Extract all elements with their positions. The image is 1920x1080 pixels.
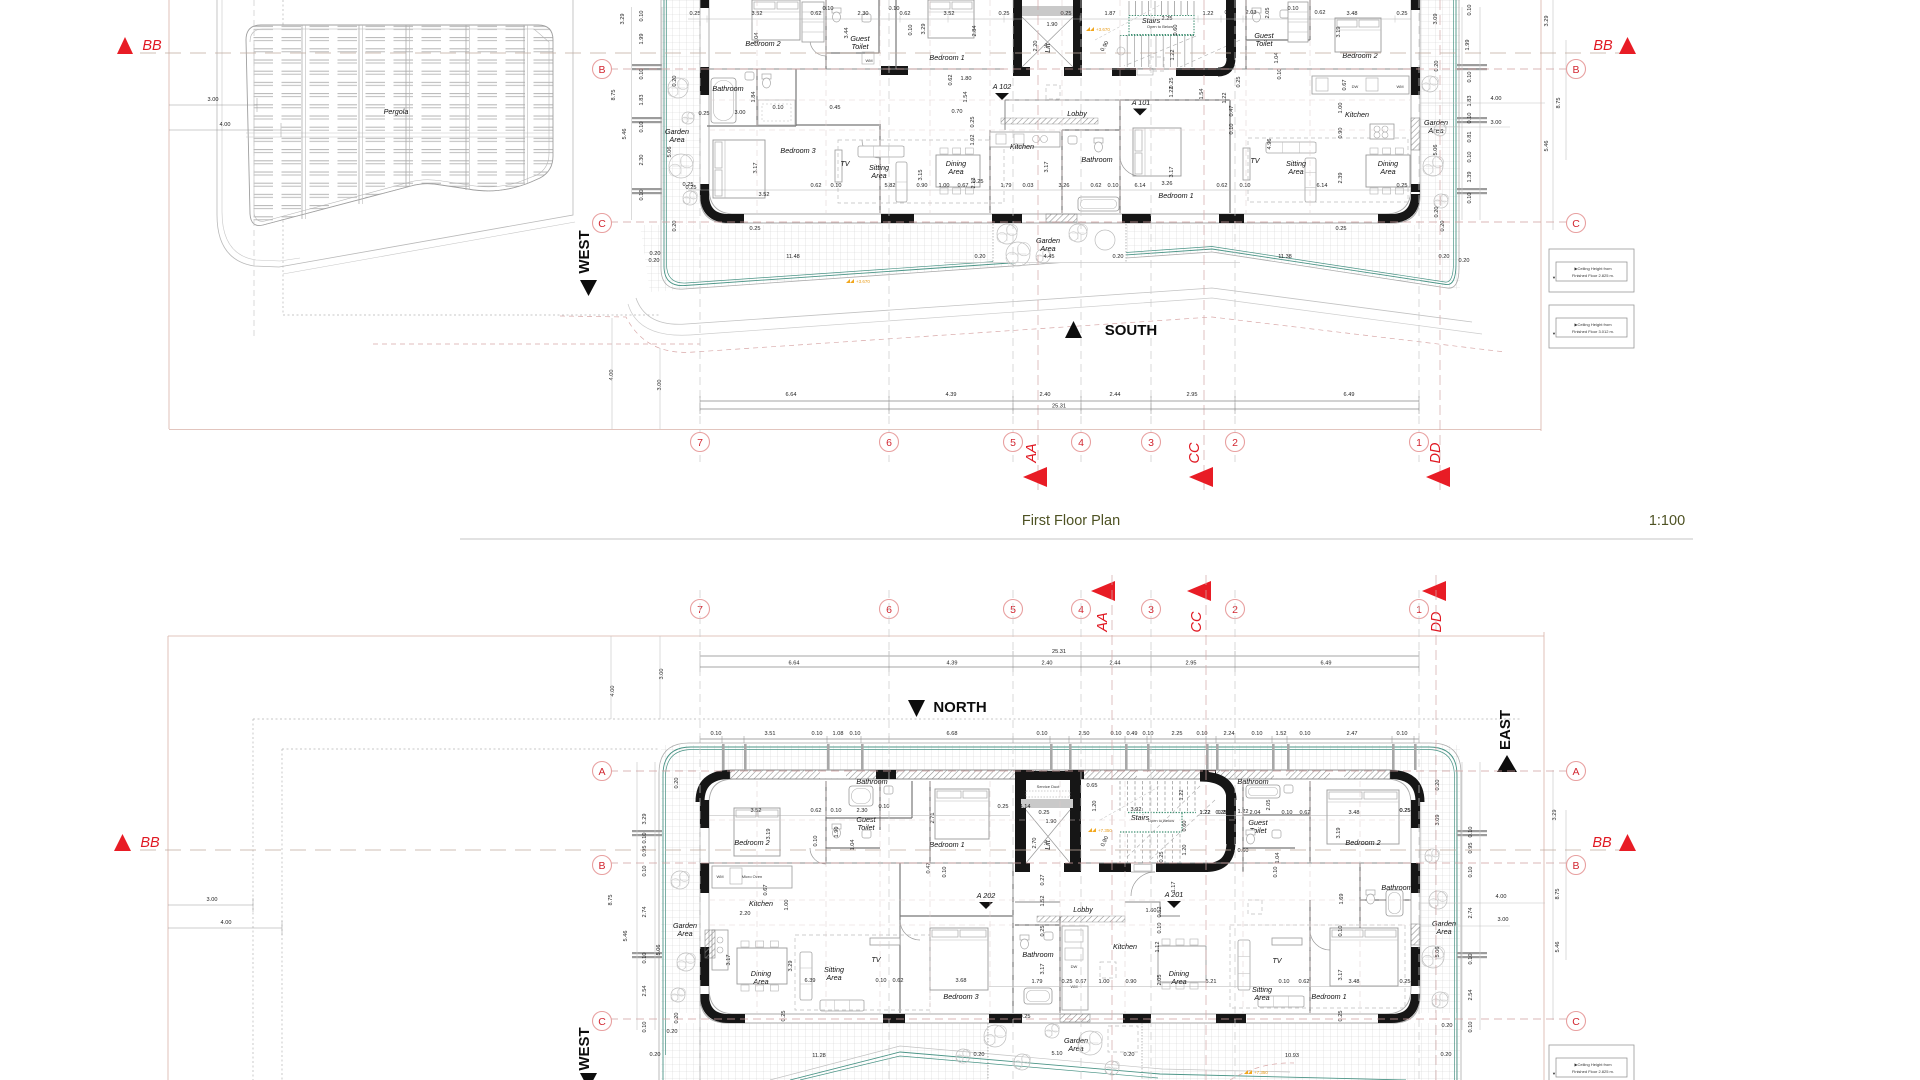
svg-text:0.10: 0.10 [1467, 152, 1473, 163]
svg-text:8.75: 8.75 [608, 895, 614, 906]
svg-text:Area: Area [1435, 927, 1451, 936]
svg-text:1.69: 1.69 [1339, 894, 1345, 905]
svg-text:0.10: 0.10 [1468, 867, 1474, 878]
svg-text:2.71: 2.71 [930, 813, 936, 824]
svg-text:Finished Floor 2.825 m.: Finished Floor 2.825 m. [1572, 273, 1614, 278]
svg-text:0.90: 0.90 [1100, 40, 1111, 52]
svg-text:0.10: 0.10 [639, 122, 645, 133]
svg-text:Bathroom: Bathroom [856, 777, 887, 786]
svg-text:6.39: 6.39 [805, 978, 816, 984]
svg-text:Area: Area [1170, 977, 1186, 986]
svg-text:1.22: 1.22 [1169, 87, 1175, 98]
svg-text:0.90: 0.90 [917, 183, 928, 189]
svg-text:0.45: 0.45 [830, 105, 841, 111]
svg-text:0.10: 0.10 [850, 731, 861, 737]
svg-text:0.10: 0.10 [1300, 731, 1311, 737]
svg-text:0.20: 0.20 [974, 1052, 985, 1058]
svg-text:Bedroom 2: Bedroom 2 [1345, 838, 1380, 847]
svg-text:2.05: 2.05 [1265, 8, 1271, 19]
svg-text:WEST: WEST [576, 230, 593, 273]
svg-text:3.44: 3.44 [844, 28, 850, 39]
svg-text:Bedroom 1: Bedroom 1 [1158, 191, 1193, 200]
svg-text:3.52: 3.52 [944, 11, 955, 17]
svg-text:0.10: 0.10 [642, 953, 648, 964]
svg-text:3.68: 3.68 [956, 978, 967, 984]
svg-text:2.44: 2.44 [1110, 661, 1121, 667]
svg-text:0.25: 0.25 [686, 185, 697, 191]
svg-text:A: A [598, 766, 605, 778]
svg-text:0.25: 0.25 [1062, 979, 1073, 985]
svg-text:+7.350: +7.350 [1098, 828, 1112, 833]
svg-text:▶Ceiling Height from: ▶Ceiling Height from [1574, 322, 1612, 327]
svg-text:0.25: 0.25 [690, 11, 701, 17]
svg-text:TV: TV [1272, 956, 1282, 965]
svg-text:1.22: 1.22 [1222, 93, 1228, 104]
svg-text:B: B [1572, 64, 1579, 76]
svg-text:0.10: 0.10 [1277, 69, 1283, 80]
svg-text:6.14: 6.14 [1135, 183, 1146, 189]
svg-text:DW: DW [1071, 964, 1078, 969]
svg-text:1.22: 1.22 [1200, 810, 1211, 816]
svg-text:Area: Area [870, 171, 886, 180]
svg-text:0.10: 0.10 [1467, 5, 1473, 16]
svg-text:1.00: 1.00 [939, 183, 950, 189]
svg-text:25.31: 25.31 [1052, 404, 1066, 410]
svg-text:Bathroom: Bathroom [1022, 950, 1053, 959]
svg-text:0.20: 0.20 [674, 778, 680, 789]
svg-text:AA: AA [1024, 443, 1040, 463]
svg-text:0.95: 0.95 [1468, 843, 1474, 854]
svg-text:Kitchen: Kitchen [1010, 142, 1034, 151]
svg-text:4.14: 4.14 [1020, 804, 1031, 810]
svg-text:SOUTH: SOUTH [1105, 322, 1158, 339]
svg-text:0.25: 0.25 [1397, 183, 1408, 189]
svg-text:5.46: 5.46 [622, 129, 628, 140]
svg-text:2.47: 2.47 [1347, 731, 1358, 737]
svg-text:0.25: 0.25 [1216, 810, 1227, 816]
svg-text:2.30: 2.30 [639, 155, 645, 166]
svg-text:A 202: A 202 [976, 891, 996, 900]
svg-text:5.06: 5.06 [656, 945, 662, 956]
svg-text:3: 3 [1148, 437, 1154, 449]
svg-text:2.25: 2.25 [1172, 731, 1183, 737]
svg-text:1.00: 1.00 [1338, 103, 1344, 114]
svg-text:8.75: 8.75 [1555, 889, 1561, 900]
svg-text:0.25: 0.25 [1225, 10, 1236, 16]
svg-text:Stairs: Stairs [1131, 813, 1150, 822]
svg-text:4.96: 4.96 [1267, 139, 1273, 150]
svg-text:0.20: 0.20 [667, 1029, 678, 1035]
svg-text:3.17: 3.17 [1169, 167, 1175, 178]
svg-text:A 102: A 102 [992, 82, 1012, 91]
svg-text:3.00: 3.00 [208, 97, 219, 103]
svg-text:3.19: 3.19 [1336, 828, 1342, 839]
svg-text:1.12: 1.12 [1155, 942, 1161, 953]
svg-text:0.62: 0.62 [811, 183, 822, 189]
svg-text:Bathroom: Bathroom [712, 84, 743, 93]
svg-text:Open to Below: Open to Below [1148, 818, 1174, 823]
svg-text:0.62: 0.62 [900, 11, 911, 17]
svg-text:5.06: 5.06 [1433, 145, 1439, 156]
svg-text:6.49: 6.49 [1321, 661, 1332, 667]
svg-text:0.52: 0.52 [1157, 907, 1163, 918]
svg-text:0.10: 0.10 [876, 978, 887, 984]
svg-text:1.17: 1.17 [1171, 882, 1177, 893]
svg-text:1.04: 1.04 [850, 840, 856, 851]
svg-text:WEST: WEST [576, 1027, 593, 1070]
svg-text:2.54: 2.54 [1468, 990, 1474, 1001]
svg-text:0.47: 0.47 [1229, 106, 1235, 117]
svg-text:2.95: 2.95 [1186, 661, 1197, 667]
svg-text:0.10: 0.10 [1229, 124, 1235, 135]
svg-text:3.29: 3.29 [788, 961, 794, 972]
svg-text:0.20: 0.20 [1459, 258, 1470, 264]
svg-text:6.49: 6.49 [1344, 392, 1355, 398]
svg-text:1.79: 1.79 [1032, 979, 1043, 985]
svg-text:NORTH: NORTH [933, 699, 986, 716]
svg-text:0.20: 0.20 [650, 251, 661, 257]
svg-text:0.70: 0.70 [952, 109, 963, 115]
svg-text:0.25: 0.25 [750, 226, 761, 232]
svg-text:1.00: 1.00 [784, 900, 790, 911]
svg-text:2.05: 2.05 [1157, 975, 1163, 986]
svg-text:TV: TV [840, 159, 850, 168]
svg-text:0.10: 0.10 [1468, 954, 1474, 965]
svg-text:0.10: 0.10 [823, 6, 834, 12]
svg-text:0.25: 0.25 [1400, 808, 1411, 814]
svg-text:0.10: 0.10 [908, 25, 914, 36]
svg-text:0.10: 0.10 [942, 867, 948, 878]
svg-text:0.10: 0.10 [711, 731, 722, 737]
svg-text:3.09: 3.09 [1433, 14, 1439, 25]
svg-text:0.10: 0.10 [639, 11, 645, 22]
svg-text:0.60: 0.60 [1182, 821, 1188, 832]
svg-text:1:100: 1:100 [1649, 513, 1685, 529]
svg-text:8.75: 8.75 [1556, 98, 1562, 109]
svg-text:3.17: 3.17 [726, 955, 732, 966]
svg-text:0.10: 0.10 [812, 731, 823, 737]
svg-text:0.65: 0.65 [1087, 783, 1098, 789]
svg-text:BB: BB [1593, 38, 1613, 54]
svg-text:3.26: 3.26 [1162, 181, 1173, 187]
svg-text:3.48: 3.48 [1349, 979, 1360, 985]
svg-text:1.04: 1.04 [1274, 53, 1280, 64]
svg-text:▼: ▼ [1552, 1071, 1556, 1076]
svg-text:3.29: 3.29 [921, 24, 927, 35]
svg-text:Finished Floor 3.012 m.: Finished Floor 3.012 m. [1572, 329, 1614, 334]
svg-text:0.20: 0.20 [1442, 1023, 1453, 1029]
svg-text:3.15: 3.15 [918, 170, 924, 181]
svg-text:3.26: 3.26 [1059, 183, 1070, 189]
svg-text:BB: BB [142, 38, 162, 54]
svg-text:10.93: 10.93 [1285, 1053, 1299, 1059]
svg-text:Lobby: Lobby [1067, 109, 1087, 118]
svg-text:0.49: 0.49 [1127, 731, 1138, 737]
svg-text:WM: WM [716, 874, 723, 879]
svg-text:0.10: 0.10 [1037, 731, 1048, 737]
svg-text:0.25: 0.25 [1338, 1011, 1344, 1022]
svg-text:3.19: 3.19 [766, 829, 772, 840]
svg-text:1.84: 1.84 [751, 92, 757, 103]
svg-text:DD: DD [1428, 443, 1444, 464]
svg-text:1.54: 1.54 [963, 92, 969, 103]
svg-text:EAST: EAST [1497, 710, 1514, 750]
svg-text:2.04: 2.04 [1250, 810, 1261, 816]
svg-text:0.25: 0.25 [1336, 226, 1347, 232]
svg-text:1.39: 1.39 [1467, 172, 1473, 183]
svg-text:1.99: 1.99 [639, 34, 645, 45]
svg-text:0.10: 0.10 [889, 6, 900, 12]
svg-text:Bathroom: Bathroom [1381, 883, 1412, 892]
svg-text:2.54: 2.54 [642, 986, 648, 997]
svg-text:Finished Floor 2.825 m.: Finished Floor 2.825 m. [1572, 1069, 1614, 1074]
svg-text:7: 7 [697, 437, 703, 449]
svg-text:0.10: 0.10 [639, 190, 645, 201]
svg-text:2.24: 2.24 [1224, 731, 1235, 737]
svg-text:4.00: 4.00 [221, 920, 232, 926]
svg-text:Lobby: Lobby [1073, 905, 1093, 914]
svg-text:0.25: 0.25 [1236, 77, 1242, 88]
svg-text:0.10: 0.10 [1143, 731, 1154, 737]
svg-text:0.10: 0.10 [1108, 183, 1119, 189]
svg-text:0.10: 0.10 [1279, 979, 1290, 985]
svg-text:0.20: 0.20 [1434, 61, 1440, 72]
svg-text:0.20: 0.20 [672, 76, 678, 87]
svg-text:A: A [1572, 766, 1579, 778]
svg-text:2.44: 2.44 [1110, 392, 1121, 398]
svg-text:1.20: 1.20 [1182, 845, 1188, 856]
svg-text:Bedroom 1: Bedroom 1 [1311, 992, 1346, 1001]
svg-text:0.20: 0.20 [1124, 1052, 1135, 1058]
svg-text:1.20: 1.20 [1092, 801, 1098, 812]
svg-text:4.45: 4.45 [1044, 254, 1055, 260]
svg-text:C: C [598, 218, 606, 230]
svg-text:0.10: 0.10 [642, 866, 648, 877]
svg-text:2.95: 2.95 [1187, 392, 1198, 398]
svg-text:Area: Area [947, 167, 963, 176]
svg-text:3.48: 3.48 [1347, 11, 1358, 17]
svg-text:6.14: 6.14 [1317, 183, 1328, 189]
svg-text:3.51: 3.51 [765, 731, 776, 737]
svg-text:0.25: 0.25 [970, 117, 976, 128]
svg-text:0.10: 0.10 [1397, 731, 1408, 737]
svg-text:WM: WM [865, 58, 872, 63]
svg-text:0.20: 0.20 [650, 1052, 661, 1058]
svg-text:4.00: 4.00 [220, 122, 231, 128]
svg-text:1.90: 1.90 [834, 827, 840, 838]
svg-text:1.90: 1.90 [1047, 22, 1058, 28]
svg-text:0.62: 0.62 [1091, 183, 1102, 189]
svg-text:Service Duct: Service Duct [1037, 784, 1061, 789]
svg-text:1.83: 1.83 [639, 95, 645, 106]
svg-text:0.62: 0.62 [1299, 979, 1310, 985]
svg-text:0.03: 0.03 [1023, 183, 1034, 189]
svg-text:0.25: 0.25 [998, 804, 1009, 810]
svg-text:0.25: 0.25 [1040, 926, 1046, 937]
svg-text:0.20: 0.20 [1441, 1052, 1452, 1058]
svg-text:TV: TV [1250, 156, 1260, 165]
svg-text:3.17: 3.17 [1044, 162, 1050, 173]
svg-text:+3.670: +3.670 [856, 279, 870, 284]
svg-text:2.70: 2.70 [1032, 838, 1038, 849]
svg-text:0.62: 0.62 [1300, 810, 1311, 816]
svg-text:Area: Area [1253, 993, 1269, 1002]
svg-text:0.62: 0.62 [811, 808, 822, 814]
svg-text:Bedroom 1: Bedroom 1 [929, 53, 964, 62]
svg-text:5.06: 5.06 [667, 147, 673, 158]
svg-text:0.10: 0.10 [1467, 193, 1473, 204]
svg-text:A 101: A 101 [1131, 98, 1151, 107]
svg-text:0.67: 0.67 [1342, 80, 1348, 91]
svg-text:C: C [598, 1016, 606, 1028]
svg-text:6.64: 6.64 [789, 661, 800, 667]
svg-text:0.25: 0.25 [1397, 11, 1408, 17]
svg-text:0.62: 0.62 [1315, 10, 1326, 16]
svg-text:3.00: 3.00 [735, 110, 746, 116]
svg-text:1.99: 1.99 [1465, 40, 1471, 51]
svg-text:0.62: 0.62 [1217, 183, 1228, 189]
svg-text:2.03: 2.03 [1246, 10, 1257, 16]
svg-text:0.10: 0.10 [1282, 810, 1293, 816]
svg-text:Pergola: Pergola [384, 107, 409, 116]
svg-text:▼: ▼ [1552, 275, 1556, 280]
svg-text:2.30: 2.30 [858, 11, 869, 17]
svg-text:1.08: 1.08 [833, 731, 844, 737]
svg-text:1.22: 1.22 [1170, 50, 1176, 61]
svg-text:0.90: 0.90 [1100, 835, 1110, 847]
svg-text:4.39: 4.39 [947, 661, 958, 667]
svg-text:Kitchen: Kitchen [749, 899, 773, 908]
svg-text:Micro Oven: Micro Oven [742, 874, 762, 879]
svg-text:3.19: 3.19 [1336, 27, 1342, 38]
svg-text:▼: ▼ [1552, 331, 1556, 336]
svg-text:4: 4 [1078, 437, 1084, 449]
svg-text:2.74: 2.74 [1468, 908, 1474, 919]
svg-text:AA: AA [1095, 612, 1111, 632]
svg-text:0.10: 0.10 [831, 808, 842, 814]
svg-text:Bedroom 3: Bedroom 3 [943, 992, 978, 1001]
svg-text:4.39: 4.39 [946, 392, 957, 398]
svg-text:3.17: 3.17 [1338, 970, 1344, 981]
svg-text:5.21: 5.21 [1206, 979, 1217, 985]
svg-text:Toilet: Toilet [1256, 39, 1274, 48]
svg-text:2.20: 2.20 [740, 911, 751, 917]
svg-text:11.38: 11.38 [1278, 254, 1292, 260]
svg-text:1.04: 1.04 [1275, 853, 1281, 864]
svg-text:2.40: 2.40 [1042, 661, 1053, 667]
svg-text:2.40: 2.40 [1040, 392, 1051, 398]
svg-text:0.25: 0.25 [973, 179, 984, 185]
svg-text:Kitchen: Kitchen [1345, 110, 1369, 119]
svg-text:0.90: 0.90 [1338, 128, 1344, 139]
svg-text:First Floor Plan: First Floor Plan [1022, 513, 1120, 529]
svg-text:0.67: 0.67 [763, 885, 769, 896]
svg-text:C: C [1572, 1016, 1580, 1028]
svg-text:0.62: 0.62 [893, 978, 904, 984]
svg-text:2.50: 2.50 [1079, 731, 1090, 737]
svg-text:C: C [1572, 218, 1580, 230]
svg-text:Area: Area [668, 135, 684, 144]
svg-text:1.83: 1.83 [1467, 96, 1473, 107]
svg-text:3.29: 3.29 [620, 14, 626, 25]
svg-text:0.10: 0.10 [642, 833, 648, 844]
svg-text:5: 5 [1010, 437, 1016, 449]
svg-text:2.39: 2.39 [1338, 173, 1344, 184]
svg-text:0.10: 0.10 [1288, 6, 1299, 12]
svg-text:Area: Area [752, 977, 768, 986]
svg-text:0.47: 0.47 [926, 863, 932, 874]
svg-text:0.25: 0.25 [1039, 810, 1050, 816]
svg-text:Area: Area [676, 929, 692, 938]
svg-text:▶Ceiling Height from: ▶Ceiling Height from [1574, 1062, 1612, 1067]
svg-text:0.10: 0.10 [1468, 827, 1474, 838]
svg-text:0.10: 0.10 [1338, 926, 1344, 937]
svg-text:0.20: 0.20 [674, 1013, 680, 1024]
svg-text:3.00: 3.00 [207, 897, 218, 903]
svg-text:6.68: 6.68 [947, 731, 958, 737]
svg-text:0.10: 0.10 [1157, 923, 1163, 934]
svg-text:2.84: 2.84 [972, 26, 978, 37]
svg-text:6: 6 [886, 437, 892, 449]
svg-text:WM: WM [1396, 84, 1403, 89]
svg-text:Bedroom 3: Bedroom 3 [780, 146, 815, 155]
svg-text:0.81: 0.81 [1467, 132, 1473, 143]
svg-text:0.20: 0.20 [975, 254, 986, 260]
svg-text:3.29: 3.29 [642, 814, 648, 825]
svg-text:Bedroom 2: Bedroom 2 [734, 838, 769, 847]
svg-text:B: B [598, 860, 605, 872]
svg-text:3.48: 3.48 [1349, 810, 1360, 816]
svg-text:0.10: 0.10 [1240, 183, 1251, 189]
svg-text:Area: Area [1039, 244, 1055, 253]
svg-text:4.00: 4.00 [1491, 96, 1502, 102]
svg-text:1.22: 1.22 [1179, 790, 1185, 801]
svg-text:0.10: 0.10 [813, 836, 819, 847]
svg-text:Bedroom 1: Bedroom 1 [929, 840, 964, 849]
svg-text:6.64: 6.64 [786, 392, 797, 398]
svg-text:0.25: 0.25 [1400, 979, 1411, 985]
svg-text:0.20: 0.20 [649, 258, 660, 264]
svg-text:0.10: 0.10 [1273, 867, 1279, 878]
svg-text:0.25: 0.25 [781, 1011, 787, 1022]
svg-text:0.10: 0.10 [831, 183, 842, 189]
svg-text:0.62: 0.62 [948, 75, 954, 86]
svg-text:+3.670: +3.670 [1096, 27, 1110, 32]
svg-text:4.00: 4.00 [1496, 894, 1507, 900]
svg-text:2.30: 2.30 [857, 808, 868, 814]
svg-text:1.79: 1.79 [1001, 183, 1012, 189]
svg-text:3.17: 3.17 [753, 163, 759, 174]
svg-text:0.95: 0.95 [642, 846, 648, 857]
svg-text:Bathroom: Bathroom [1081, 155, 1112, 164]
svg-text:0.20: 0.20 [1434, 207, 1440, 218]
svg-text:Lift: Lift [1043, 42, 1052, 53]
svg-text:2.05: 2.05 [1266, 800, 1272, 811]
svg-text:0.10: 0.10 [1467, 113, 1473, 124]
svg-text:0.10: 0.10 [1467, 72, 1473, 83]
svg-text:Bathroom: Bathroom [1237, 777, 1268, 786]
svg-text:25.31: 25.31 [1052, 649, 1066, 655]
svg-text:5.10: 5.10 [1052, 1051, 1063, 1057]
svg-text:+7.350: +7.350 [1254, 1070, 1268, 1075]
svg-text:1.52: 1.52 [1040, 896, 1046, 907]
svg-text:8.75: 8.75 [611, 90, 617, 101]
svg-text:5.46: 5.46 [623, 931, 629, 942]
svg-text:1: 1 [1416, 437, 1422, 449]
svg-text:1.02: 1.02 [970, 135, 976, 146]
svg-text:Toilet: Toilet [852, 42, 870, 51]
svg-text:B: B [598, 64, 605, 76]
